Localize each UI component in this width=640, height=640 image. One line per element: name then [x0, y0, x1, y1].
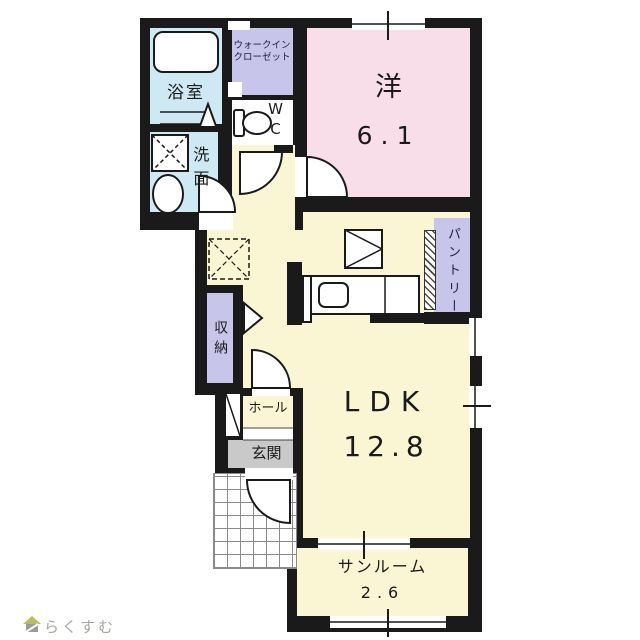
- logo-text: らくすむ: [44, 616, 116, 637]
- kitchen-counter: [302, 275, 420, 315]
- room-bathroom: [150, 28, 222, 124]
- ldk-size: 12.8: [303, 431, 470, 463]
- wc-label-c: C: [258, 121, 293, 138]
- room-corridor: [232, 145, 295, 230]
- wc-label-w: W: [258, 101, 293, 118]
- pantry-folding-door: [424, 230, 436, 310]
- window-ldk-sunroom: [318, 538, 410, 550]
- kitchen-counter-wing: [302, 275, 312, 323]
- hall-label: ホール: [243, 402, 293, 417]
- bathroom-label: 浴室: [150, 84, 222, 104]
- storage-label: 収納: [212, 320, 228, 360]
- floorplan: 浴室 ウォークイン クローゼット W C 洗面 洋 6.1 パントリー 収納 ホ…: [0, 0, 640, 640]
- window-sunroom-bottom: [330, 616, 446, 628]
- opening-hall-ldk: [252, 388, 290, 396]
- logo-house-icon: [22, 614, 42, 634]
- shoe-cabinet: [224, 392, 242, 438]
- opening-western-room: [295, 157, 309, 197]
- room-western: [307, 28, 470, 197]
- wic-label-line1: ウォークイン: [231, 41, 293, 52]
- window-right-ldk: [469, 386, 482, 428]
- wall-counter-stub: [370, 313, 424, 323]
- western-room-size: 6.1: [307, 122, 470, 151]
- wall-kitchen-left: [287, 262, 302, 325]
- western-room-label: 洋: [307, 72, 470, 103]
- opening-washroom: [199, 212, 233, 230]
- sunroom-size: 2.6: [297, 584, 468, 602]
- ldk-label: LDK: [303, 386, 470, 418]
- entrance-threshold: [245, 468, 293, 480]
- wall-wc-stub: [274, 145, 293, 153]
- pantry-label: パントリー: [444, 227, 459, 317]
- washroom-label: 洗面: [190, 146, 208, 194]
- porch-tiles: [213, 473, 297, 569]
- window-right-small: [469, 318, 482, 356]
- wic-notch-top: [228, 21, 250, 30]
- entrance-label: 玄関: [240, 445, 293, 462]
- entrance-step: [243, 428, 293, 440]
- wic-niche: [228, 82, 242, 97]
- window-top: [352, 18, 425, 30]
- sunroom-label: サンルーム: [297, 558, 468, 576]
- wic-label-line2: クローゼット: [231, 53, 293, 64]
